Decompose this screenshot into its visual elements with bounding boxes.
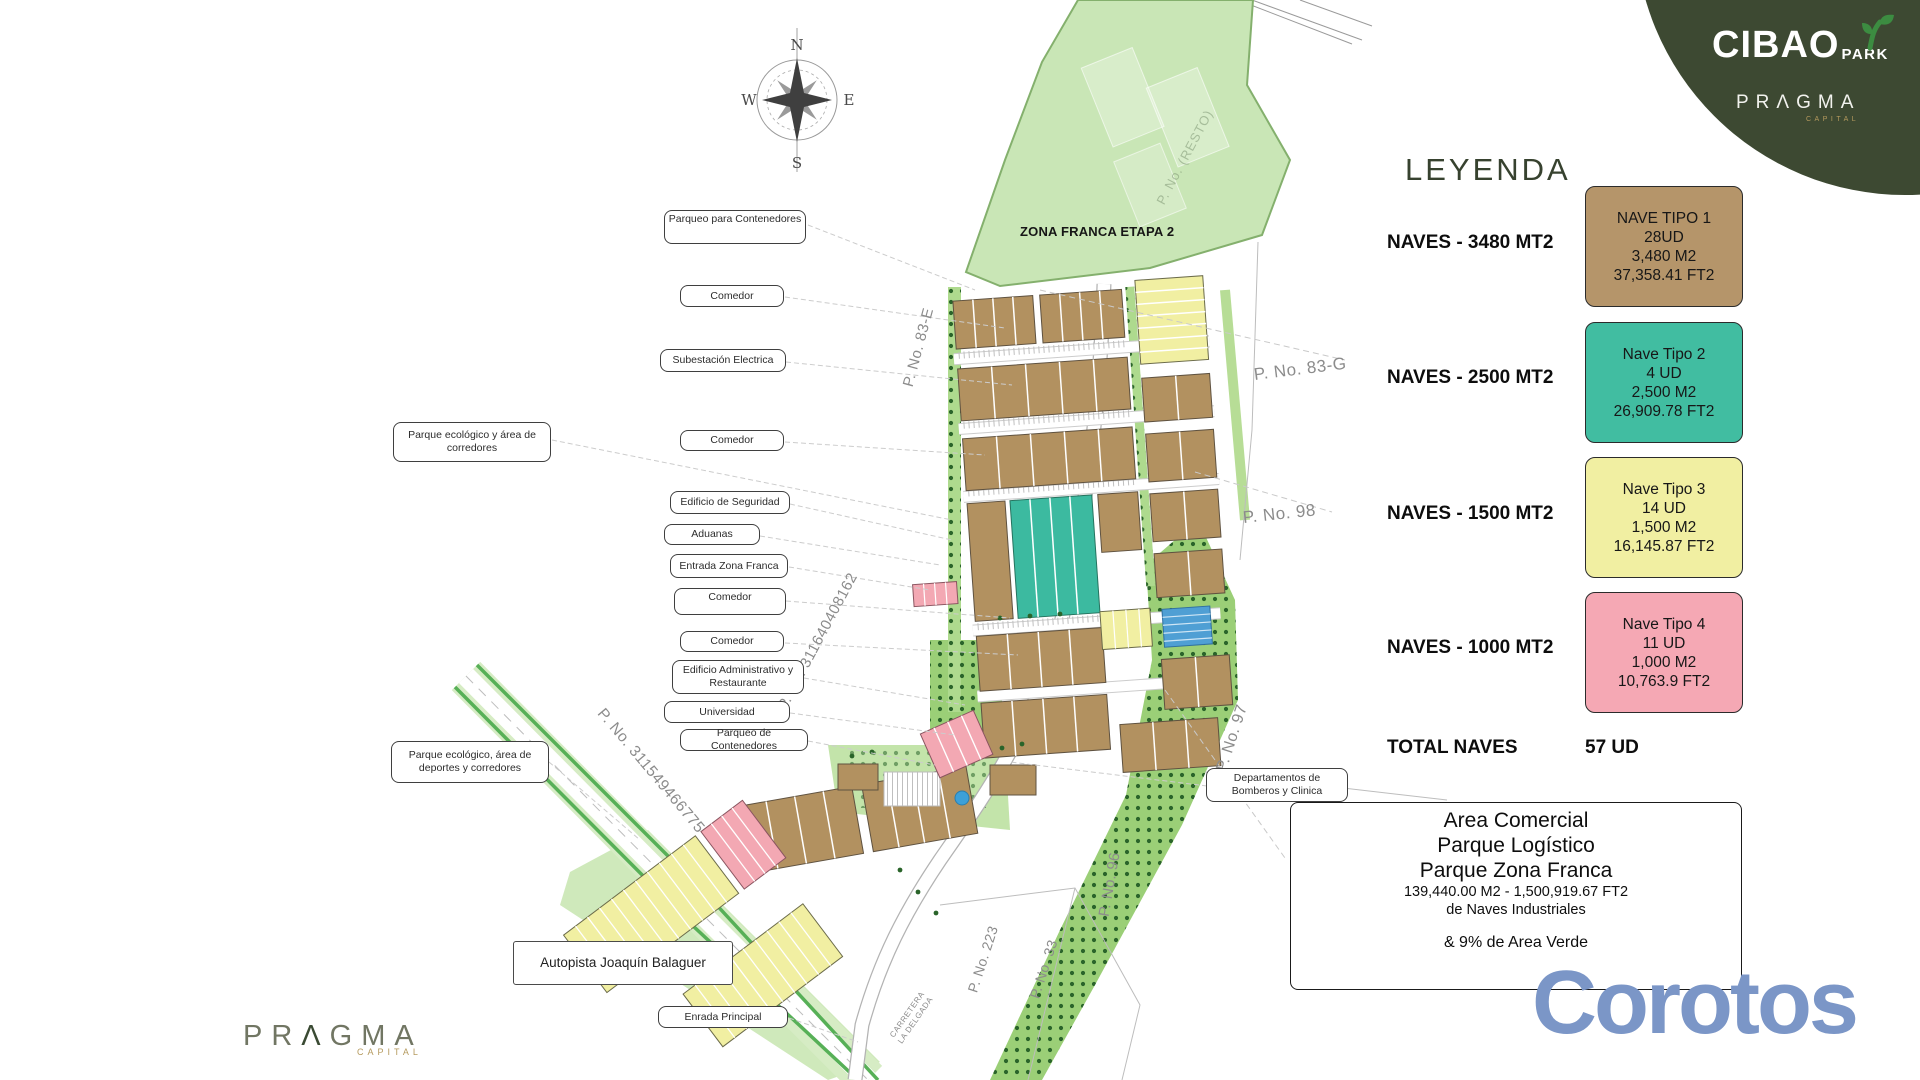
zona-franca-area bbox=[966, 0, 1290, 286]
legend-title: LEYENDA bbox=[1405, 152, 1571, 188]
legend-box4-line3: 1,000 M2 bbox=[1632, 653, 1697, 672]
masterplan-page: N S W E ZONA FRANCA ETAPA 2 P. No. (REST… bbox=[0, 0, 1920, 1080]
legend-box3-line2: 14 UD bbox=[1642, 499, 1686, 518]
info-parque-zona-franca: Parque Zona Franca bbox=[1291, 858, 1741, 883]
cibao-wordmark: CIBAO bbox=[1712, 26, 1839, 64]
legend-label-naves-1500: NAVES - 1500 MT2 bbox=[1387, 503, 1562, 525]
info-area-comercial: Area Comercial bbox=[1291, 808, 1741, 833]
compass-n: N bbox=[790, 36, 803, 54]
legend-box1-line1: NAVE TIPO 1 bbox=[1617, 209, 1711, 228]
compass-e: E bbox=[844, 91, 855, 109]
callout-comedor-4: Comedor bbox=[680, 631, 784, 652]
callout-edificio-administrativo: Edificio Administrativo y Restaurante bbox=[672, 660, 804, 694]
legend-box4-line2: 11 UD bbox=[1643, 634, 1686, 653]
compass-w: W bbox=[741, 91, 757, 109]
legend-box-nave-tipo-1: NAVE TIPO 1 28UD 3,480 M2 37,358.41 FT2 bbox=[1585, 186, 1743, 307]
legend-box2-line3: 2,500 M2 bbox=[1632, 383, 1697, 402]
callout-parqueo-para-contenedores: Parqueo para Contenedores bbox=[664, 210, 806, 244]
legend-box3-line4: 16,145.87 FT2 bbox=[1614, 537, 1715, 556]
info-area-verde: & 9% de Area Verde bbox=[1291, 934, 1741, 952]
legend-box4-line1: Nave Tipo 4 bbox=[1623, 615, 1706, 634]
legend-label-naves-2500: NAVES - 2500 MT2 bbox=[1387, 367, 1562, 389]
callout-subestacion-electrica: Subestación Electrica bbox=[660, 349, 786, 372]
callout-autopista-joaquin-balaguer: Autopista Joaquín Balaguer bbox=[513, 941, 733, 985]
legend-box2-line4: 26,909.78 FT2 bbox=[1614, 402, 1715, 421]
compass-rose: N S W E bbox=[741, 28, 854, 172]
legend-box-nave-tipo-3: Nave Tipo 3 14 UD 1,500 M2 16,145.87 FT2 bbox=[1585, 457, 1743, 578]
callout-comedor-2: Comedor bbox=[680, 430, 784, 451]
callout-entrada-zona-franca: Entrada Zona Franca bbox=[670, 554, 788, 578]
sprout-leaf-icon bbox=[1858, 12, 1898, 52]
callout-comedor-1: Comedor bbox=[680, 285, 784, 307]
brand-pragma-wordmark: PRΛGMA bbox=[1736, 92, 1860, 114]
corotos-watermark: Corotos bbox=[1532, 958, 1856, 1048]
info-parque-logistico: Parque Logístico bbox=[1291, 833, 1741, 858]
callout-aduanas: Aduanas bbox=[664, 524, 760, 545]
info-area-totals: 139,440.00 M2 - 1,500,919.67 FT2 bbox=[1291, 883, 1741, 901]
callout-edificio-de-seguridad: Edificio de Seguridad bbox=[670, 491, 790, 514]
legend-box3-line3: 1,500 M2 bbox=[1632, 518, 1697, 537]
footer-pragma-p1: PR bbox=[243, 1020, 301, 1052]
callout-departamentos-bomberos: Departamentos de Bomberos y Clinica bbox=[1206, 768, 1348, 802]
legend-label-naves-1000: NAVES - 1000 MT2 bbox=[1387, 637, 1562, 659]
callout-parque-ecologico-corredores: Parque ecológico y área de corredores bbox=[393, 422, 551, 462]
info-naves-industriales: de Naves Industriales bbox=[1291, 901, 1741, 919]
compass-s: S bbox=[792, 154, 802, 172]
footer-pragma-lambda: Λ bbox=[301, 1020, 329, 1052]
callout-universidad: Universidad bbox=[664, 701, 790, 723]
callout-comedor-3: Comedor bbox=[674, 588, 786, 615]
legend-box2-line1: Nave Tipo 2 bbox=[1623, 345, 1706, 364]
legend-box1-line2: 28UD bbox=[1644, 228, 1684, 247]
legend-box4-line4: 10,763.9 FT2 bbox=[1618, 672, 1710, 691]
callout-parqueo-de-contenedores: Parqueo de Contenedores bbox=[680, 729, 808, 751]
zona-franca-label: ZONA FRANCA ETAPA 2 bbox=[1020, 224, 1195, 239]
footer-capital-wordmark: CAPITAL bbox=[357, 1047, 422, 1057]
legend-box-nave-tipo-4: Nave Tipo 4 11 UD 1,000 M2 10,763.9 FT2 bbox=[1585, 592, 1743, 713]
total-naves-value: 57 UD bbox=[1585, 737, 1639, 759]
legend-box1-line3: 3,480 M2 bbox=[1632, 247, 1697, 266]
corner-roads bbox=[1238, 0, 1372, 44]
callout-parque-ecologico-deportes: Parque ecológico, área de deportes y cor… bbox=[391, 741, 549, 783]
total-naves-label: TOTAL NAVES bbox=[1387, 737, 1518, 759]
legend-box-nave-tipo-2: Nave Tipo 2 4 UD 2,500 M2 26,909.78 FT2 bbox=[1585, 322, 1743, 443]
legend-box1-line4: 37,358.41 FT2 bbox=[1614, 266, 1715, 285]
brand-capital-wordmark: CAPITAL bbox=[1806, 116, 1859, 123]
callout-enrada-principal: Enrada Principal bbox=[658, 1006, 788, 1028]
legend-box2-line2: 4 UD bbox=[1646, 364, 1681, 383]
legend-label-naves-3480: NAVES - 3480 MT2 bbox=[1387, 232, 1562, 254]
legend-box3-line1: Nave Tipo 3 bbox=[1623, 480, 1706, 499]
